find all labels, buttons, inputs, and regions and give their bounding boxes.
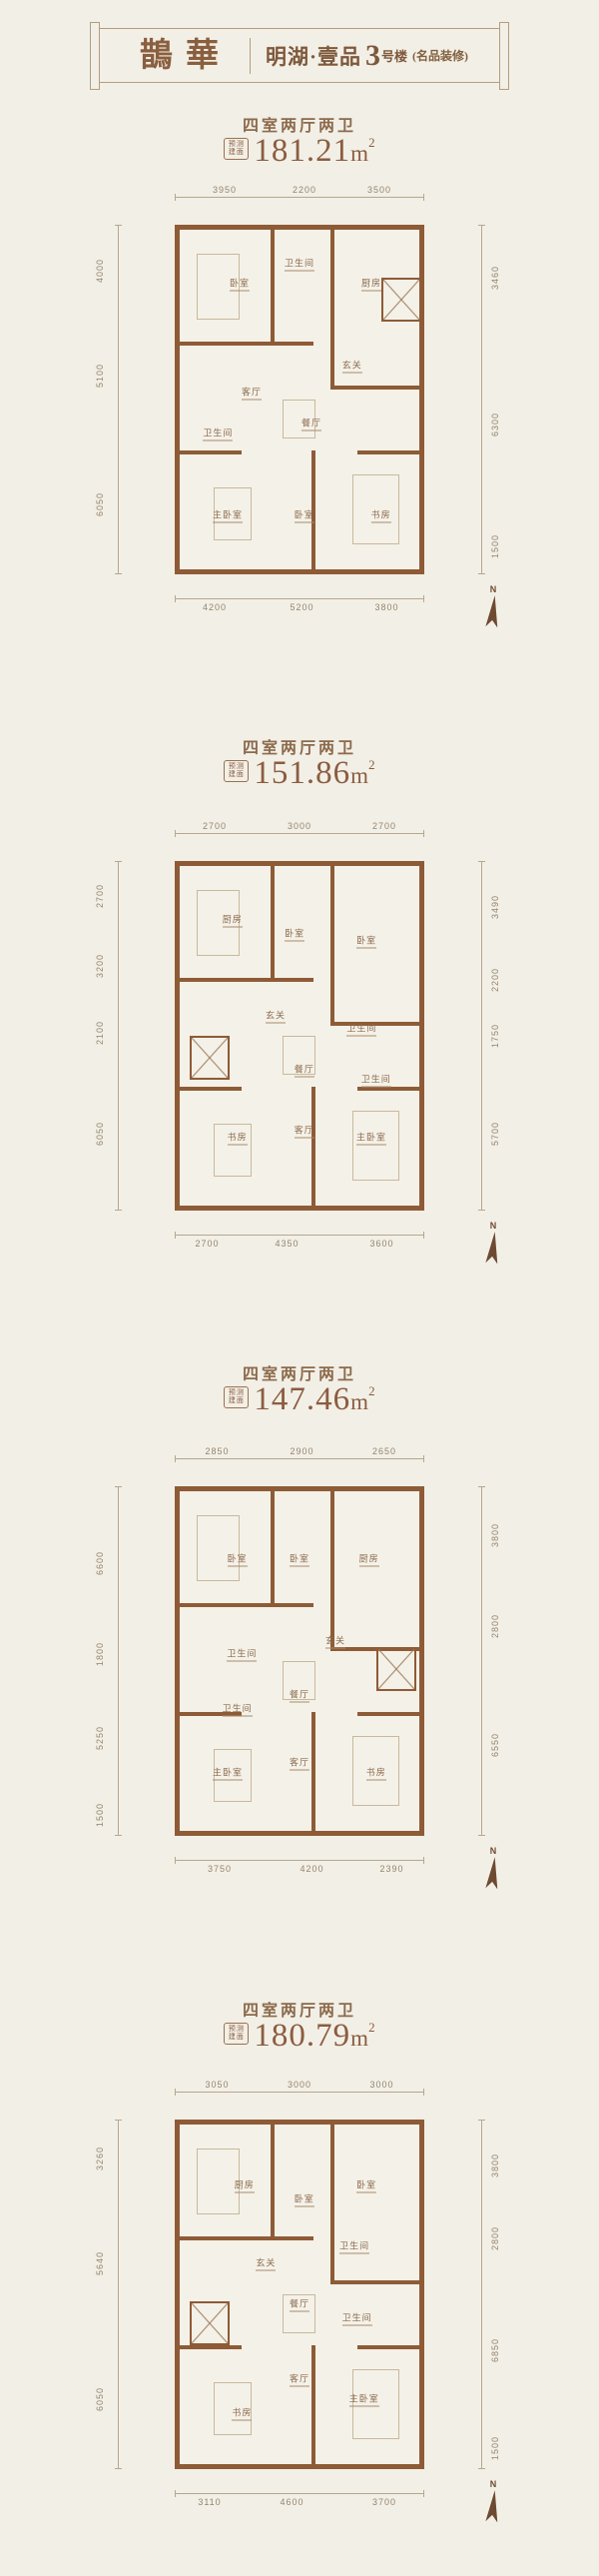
room-label: 厨房	[235, 2178, 255, 2193]
room-label: 厨房	[359, 1552, 379, 1567]
room-label: 客厅	[242, 386, 262, 401]
area-prefix-badge: 预测建面	[224, 2023, 249, 2045]
area-prefix-badge: 预测建面	[224, 760, 249, 782]
area-prefix-line1: 预测	[226, 2026, 247, 2034]
area-unit: m	[350, 141, 368, 166]
dimension-label: 3000	[288, 2080, 311, 2090]
dimension-line-left	[118, 2120, 119, 2469]
elevator-shaft	[376, 1647, 416, 1691]
floorplan-drawing: 厨房 卧室 卧室 卫生间 玄关 餐厅 卫生间 书房 客厅 主卧室	[175, 2120, 424, 2469]
dimension-line-bottom	[175, 1860, 424, 1861]
dimension-label: 3800	[374, 602, 398, 612]
dimension-line-right	[481, 2120, 482, 2469]
dimension-line-top	[175, 2092, 424, 2093]
dimension-label: 5250	[95, 1726, 105, 1750]
room-label: 餐厅	[295, 1063, 314, 1078]
interior-wall	[357, 450, 419, 454]
interior-wall	[180, 1603, 313, 1607]
dimension-line-left	[118, 861, 119, 1211]
interior-wall	[330, 1491, 334, 1647]
dimension-label: 2650	[372, 1446, 396, 1456]
north-arrow-icon	[485, 594, 500, 627]
room-label: 卧室	[285, 927, 304, 942]
dimension-label: 1500	[490, 2436, 500, 2460]
interior-wall	[330, 2280, 419, 2284]
room-label: 主卧室	[213, 1766, 243, 1781]
interior-wall	[311, 1087, 315, 1206]
room-label: 书房	[232, 2406, 252, 2421]
dimensions-top: 3050 3000 3000	[175, 2080, 424, 2090]
dimension-label: 2200	[490, 968, 500, 992]
interior-wall	[271, 2125, 275, 2236]
room-label: 客厅	[295, 1124, 314, 1139]
furniture-outline	[197, 2148, 240, 2215]
area-value: 181.21	[254, 133, 350, 169]
room-label: 卫生间	[339, 2239, 369, 2254]
dimension-label: 2100	[95, 1020, 105, 1044]
room-label: 餐厅	[301, 416, 321, 430]
room-label: 卫生间	[227, 1647, 257, 1662]
elevator-shaft	[381, 278, 421, 322]
room-label: 玄关	[256, 2256, 276, 2271]
room-label: 卫生间	[203, 427, 233, 441]
room-label: 玄关	[325, 1633, 345, 1648]
room-label: 书房	[228, 1131, 248, 1146]
interior-wall	[180, 342, 313, 346]
floorplan-drawing: 厨房 卧室 卧室 玄关 卫生间 餐厅 卫生间 书房 客厅 主卧室	[175, 861, 424, 1211]
interior-wall	[330, 386, 419, 390]
interior-wall	[330, 866, 334, 1022]
floorplan-figure: 2850 2900 2650 6600 1800 5250 1500 3800 …	[80, 1446, 519, 1916]
dimension-label: 1800	[95, 1642, 105, 1666]
dimensions-top: 2700 3000 2700	[175, 821, 424, 831]
dimension-label: 1750	[490, 1024, 500, 1048]
unit-area: 预测建面147.46m2	[0, 1381, 599, 1418]
area-value: 180.79	[254, 2018, 350, 2054]
dimension-line-bottom	[175, 2493, 424, 2494]
area-prefix-line2: 建面	[226, 149, 247, 157]
floorplan-drawing: 卧室 卫生间 厨房 玄关 客厅 餐厅 卫生间 主卧室 卧室 书房	[175, 225, 424, 574]
dimension-line-right	[481, 225, 482, 574]
dimension-label: 5200	[290, 602, 313, 612]
dimension-label: 6050	[95, 2387, 105, 2411]
room-label: 卧室	[230, 277, 250, 292]
dimension-label: 6300	[490, 412, 500, 435]
dimension-label: 2700	[195, 1239, 219, 1249]
room-label: 厨房	[361, 277, 381, 292]
north-arrow: N	[484, 584, 502, 627]
dimensions-left: 4000 5100 6050	[94, 225, 106, 574]
area-prefix-badge: 预测建面	[224, 1386, 249, 1408]
dimension-label: 2700	[203, 821, 227, 831]
header-divider	[250, 38, 251, 74]
elevator-shaft	[190, 2301, 230, 2345]
area-exponent: 2	[368, 757, 375, 772]
room-label: 主卧室	[213, 507, 243, 522]
unit-area: 预测建面151.86m2	[0, 755, 599, 792]
room-label: 主卧室	[356, 1131, 386, 1146]
room-label: 卧室	[356, 2178, 376, 2193]
interior-wall	[271, 866, 275, 978]
room-label: 卫生间	[223, 1701, 253, 1716]
dimension-label: 3800	[490, 2152, 500, 2176]
dimension-line-top	[175, 833, 424, 834]
room-label: 厨房	[223, 913, 243, 928]
interior-wall	[357, 2345, 419, 2349]
north-label: N	[484, 2479, 502, 2489]
dimensions-bottom: 4200 5200 3800	[175, 602, 424, 612]
dimension-label: 6600	[95, 1551, 105, 1575]
area-value: 151.86	[254, 755, 350, 791]
dimensions-left: 3260 5640 6050	[94, 2120, 106, 2469]
dimensions-bottom: 3750 4200 2390	[175, 1864, 424, 1874]
dimensions-right: 3490 2200 1750 5700	[489, 861, 501, 1211]
dimension-label: 6050	[95, 492, 105, 516]
dimension-label: 1500	[95, 1803, 105, 1827]
room-label: 卫生间	[342, 2310, 372, 2325]
floorplan-figure: 3950 2200 3500 4000 5100 6050 3460 6300 …	[80, 185, 519, 654]
interior-wall	[180, 450, 242, 454]
dimension-label: 4350	[275, 1239, 299, 1249]
building-suffix: 号楼	[381, 46, 407, 65]
project-name: 明湖·壹品	[266, 41, 361, 71]
dimensions-left: 6600 1800 5250 1500	[94, 1486, 106, 1836]
dimensions-top: 3950 2200 3500	[175, 185, 424, 195]
area-exponent: 2	[368, 2020, 375, 2035]
dimension-label: 3600	[369, 1239, 393, 1249]
dimension-line-right	[481, 861, 482, 1211]
area-unit: m	[350, 2026, 368, 2051]
interior-wall	[180, 2345, 242, 2349]
scroll-end-left-icon	[90, 22, 100, 90]
room-label: 书房	[366, 1766, 386, 1781]
floorplan-drawing: 卧室 卧室 厨房 卫生间 玄关 餐厅 卫生间 主卧室 客厅 书房	[175, 1486, 424, 1836]
dimension-line-bottom	[175, 1235, 424, 1236]
room-label: 卧室	[228, 1552, 248, 1567]
elevator-shaft	[190, 1036, 230, 1080]
dimension-label: 3490	[490, 894, 500, 918]
dimension-line-right	[481, 1486, 482, 1836]
room-label: 客厅	[290, 2372, 309, 2387]
dimension-label: 6850	[490, 2338, 500, 2362]
north-arrow: N	[484, 1846, 502, 1889]
room-label: 卫生间	[285, 257, 314, 272]
dimension-label: 4200	[203, 602, 227, 612]
room-label: 餐厅	[290, 1688, 309, 1703]
room-label: 卫生间	[346, 1022, 376, 1037]
area-prefix-badge: 预测建面	[224, 138, 249, 160]
brand-logo: 鵲華	[140, 35, 232, 77]
dimension-label: 5700	[490, 1122, 500, 1146]
floorplan-figure: 3050 3000 3000 3260 5640 6050 3800 2800 …	[80, 2080, 519, 2549]
furniture-outline	[197, 1515, 240, 1582]
dimension-label: 1500	[490, 534, 500, 558]
area-prefix-line2: 建面	[226, 2034, 247, 2042]
north-arrow: N	[484, 2479, 502, 2522]
brochure-page: 鵲華 明湖·壹品 3 号楼 (名品装修) 四室两厅两卫 预测建面181.21m2…	[0, 0, 599, 2576]
interior-wall	[180, 1087, 242, 1091]
dimension-line-top	[175, 1458, 424, 1459]
area-unit: m	[350, 763, 368, 788]
interior-wall	[180, 978, 313, 982]
dimension-label: 3110	[198, 2497, 221, 2507]
dimension-label: 3950	[213, 185, 237, 195]
floorplan-figure: 2700 3000 2700 2700 3200 2100 6050 3490 …	[80, 821, 519, 1290]
room-label: 卫生间	[361, 1073, 391, 1088]
room-label: 玄关	[266, 1008, 286, 1023]
room-label: 餐厅	[290, 2297, 309, 2312]
room-label: 玄关	[342, 359, 362, 374]
dimension-label: 2900	[290, 1446, 313, 1456]
dimensions-top: 2850 2900 2650	[175, 1446, 424, 1456]
dimension-label: 2700	[372, 821, 396, 831]
dimension-label: 3000	[369, 2080, 393, 2090]
interior-wall	[180, 2236, 313, 2240]
north-label: N	[484, 1846, 502, 1856]
dimension-label: 4000	[95, 258, 105, 282]
dimensions-right: 3460 6300 1500	[489, 225, 501, 574]
interior-wall	[311, 1712, 315, 1831]
room-label: 卧室	[295, 2191, 314, 2206]
dimension-label: 2800	[490, 1614, 500, 1638]
dimension-label: 3750	[208, 1864, 232, 1874]
interior-wall	[271, 1491, 275, 1603]
area-prefix-line1: 预测	[226, 141, 247, 149]
dimension-label: 3800	[490, 1523, 500, 1547]
dimension-label: 2800	[490, 2226, 500, 2250]
unit-area: 预测建面180.79m2	[0, 2018, 599, 2055]
north-arrow-icon	[485, 2489, 500, 2522]
dimension-label: 5640	[95, 2250, 105, 2274]
interior-wall	[311, 2345, 315, 2464]
north-arrow-icon	[485, 1231, 500, 1264]
dimension-label: 3460	[490, 265, 500, 289]
dimension-label: 3200	[95, 954, 105, 978]
north-label: N	[484, 1221, 502, 1231]
north-label: N	[484, 584, 502, 594]
room-label: 卧室	[290, 1552, 309, 1567]
dimension-line-left	[118, 1486, 119, 1836]
area-exponent: 2	[368, 1383, 375, 1398]
area-exponent: 2	[368, 135, 375, 150]
room-label: 书房	[371, 507, 391, 522]
dimension-label: 4200	[299, 1864, 323, 1874]
north-arrow: N	[484, 1221, 502, 1264]
dimension-label: 4600	[280, 2497, 303, 2507]
scroll-end-right-icon	[499, 22, 509, 90]
decoration-note: (名品装修)	[412, 47, 468, 64]
dimensions-right: 3800 2800 6850 1500	[489, 2120, 501, 2469]
dimension-label: 3260	[95, 2146, 105, 2169]
room-label: 客厅	[290, 1756, 309, 1771]
dimension-label: 2700	[95, 884, 105, 908]
dimension-label: 3700	[372, 2497, 396, 2507]
dimensions-bottom: 3110 4600 3700	[175, 2497, 424, 2507]
room-label: 主卧室	[349, 2392, 379, 2407]
interior-wall	[271, 230, 275, 342]
dimension-label: 2200	[293, 185, 316, 195]
area-prefix-line1: 预测	[226, 1389, 247, 1397]
project-title: 明湖·壹品 3 号楼 (名品装修)	[266, 29, 468, 82]
dimension-label: 6550	[490, 1733, 500, 1757]
north-arrow-icon	[485, 1856, 500, 1889]
area-prefix-line2: 建面	[226, 771, 247, 779]
interior-wall	[330, 2125, 334, 2280]
dimension-label: 2850	[205, 1446, 229, 1456]
area-unit: m	[350, 1389, 368, 1414]
unit-area: 预测建面181.21m2	[0, 133, 599, 170]
dimensions-left: 2700 3200 2100 6050	[94, 861, 106, 1211]
dimension-line-bottom	[175, 598, 424, 599]
room-label: 卧室	[295, 507, 314, 522]
header: 鵲華 明湖·壹品 3 号楼 (名品装修)	[95, 28, 504, 83]
area-value: 147.46	[254, 1381, 350, 1417]
dimension-label: 3050	[205, 2080, 229, 2090]
area-prefix-line2: 建面	[226, 1397, 247, 1405]
dimensions-right: 3800 2800 6550	[489, 1486, 501, 1836]
dimension-label: 3000	[288, 821, 311, 831]
area-prefix-line1: 预测	[226, 763, 247, 771]
furniture-outline	[352, 1111, 400, 1181]
dimension-label: 5100	[95, 363, 105, 387]
dimension-label: 2390	[379, 1864, 403, 1874]
room-label: 卧室	[356, 933, 376, 948]
dimensions-bottom: 2700 4350 3600	[175, 1239, 424, 1249]
dimension-line-top	[175, 197, 424, 198]
interior-wall	[357, 1712, 419, 1716]
dimension-line-left	[118, 225, 119, 574]
building-number: 3	[365, 41, 380, 71]
dimension-label: 3500	[367, 185, 391, 195]
dimension-label: 6050	[95, 1122, 105, 1146]
interior-wall	[330, 230, 334, 386]
